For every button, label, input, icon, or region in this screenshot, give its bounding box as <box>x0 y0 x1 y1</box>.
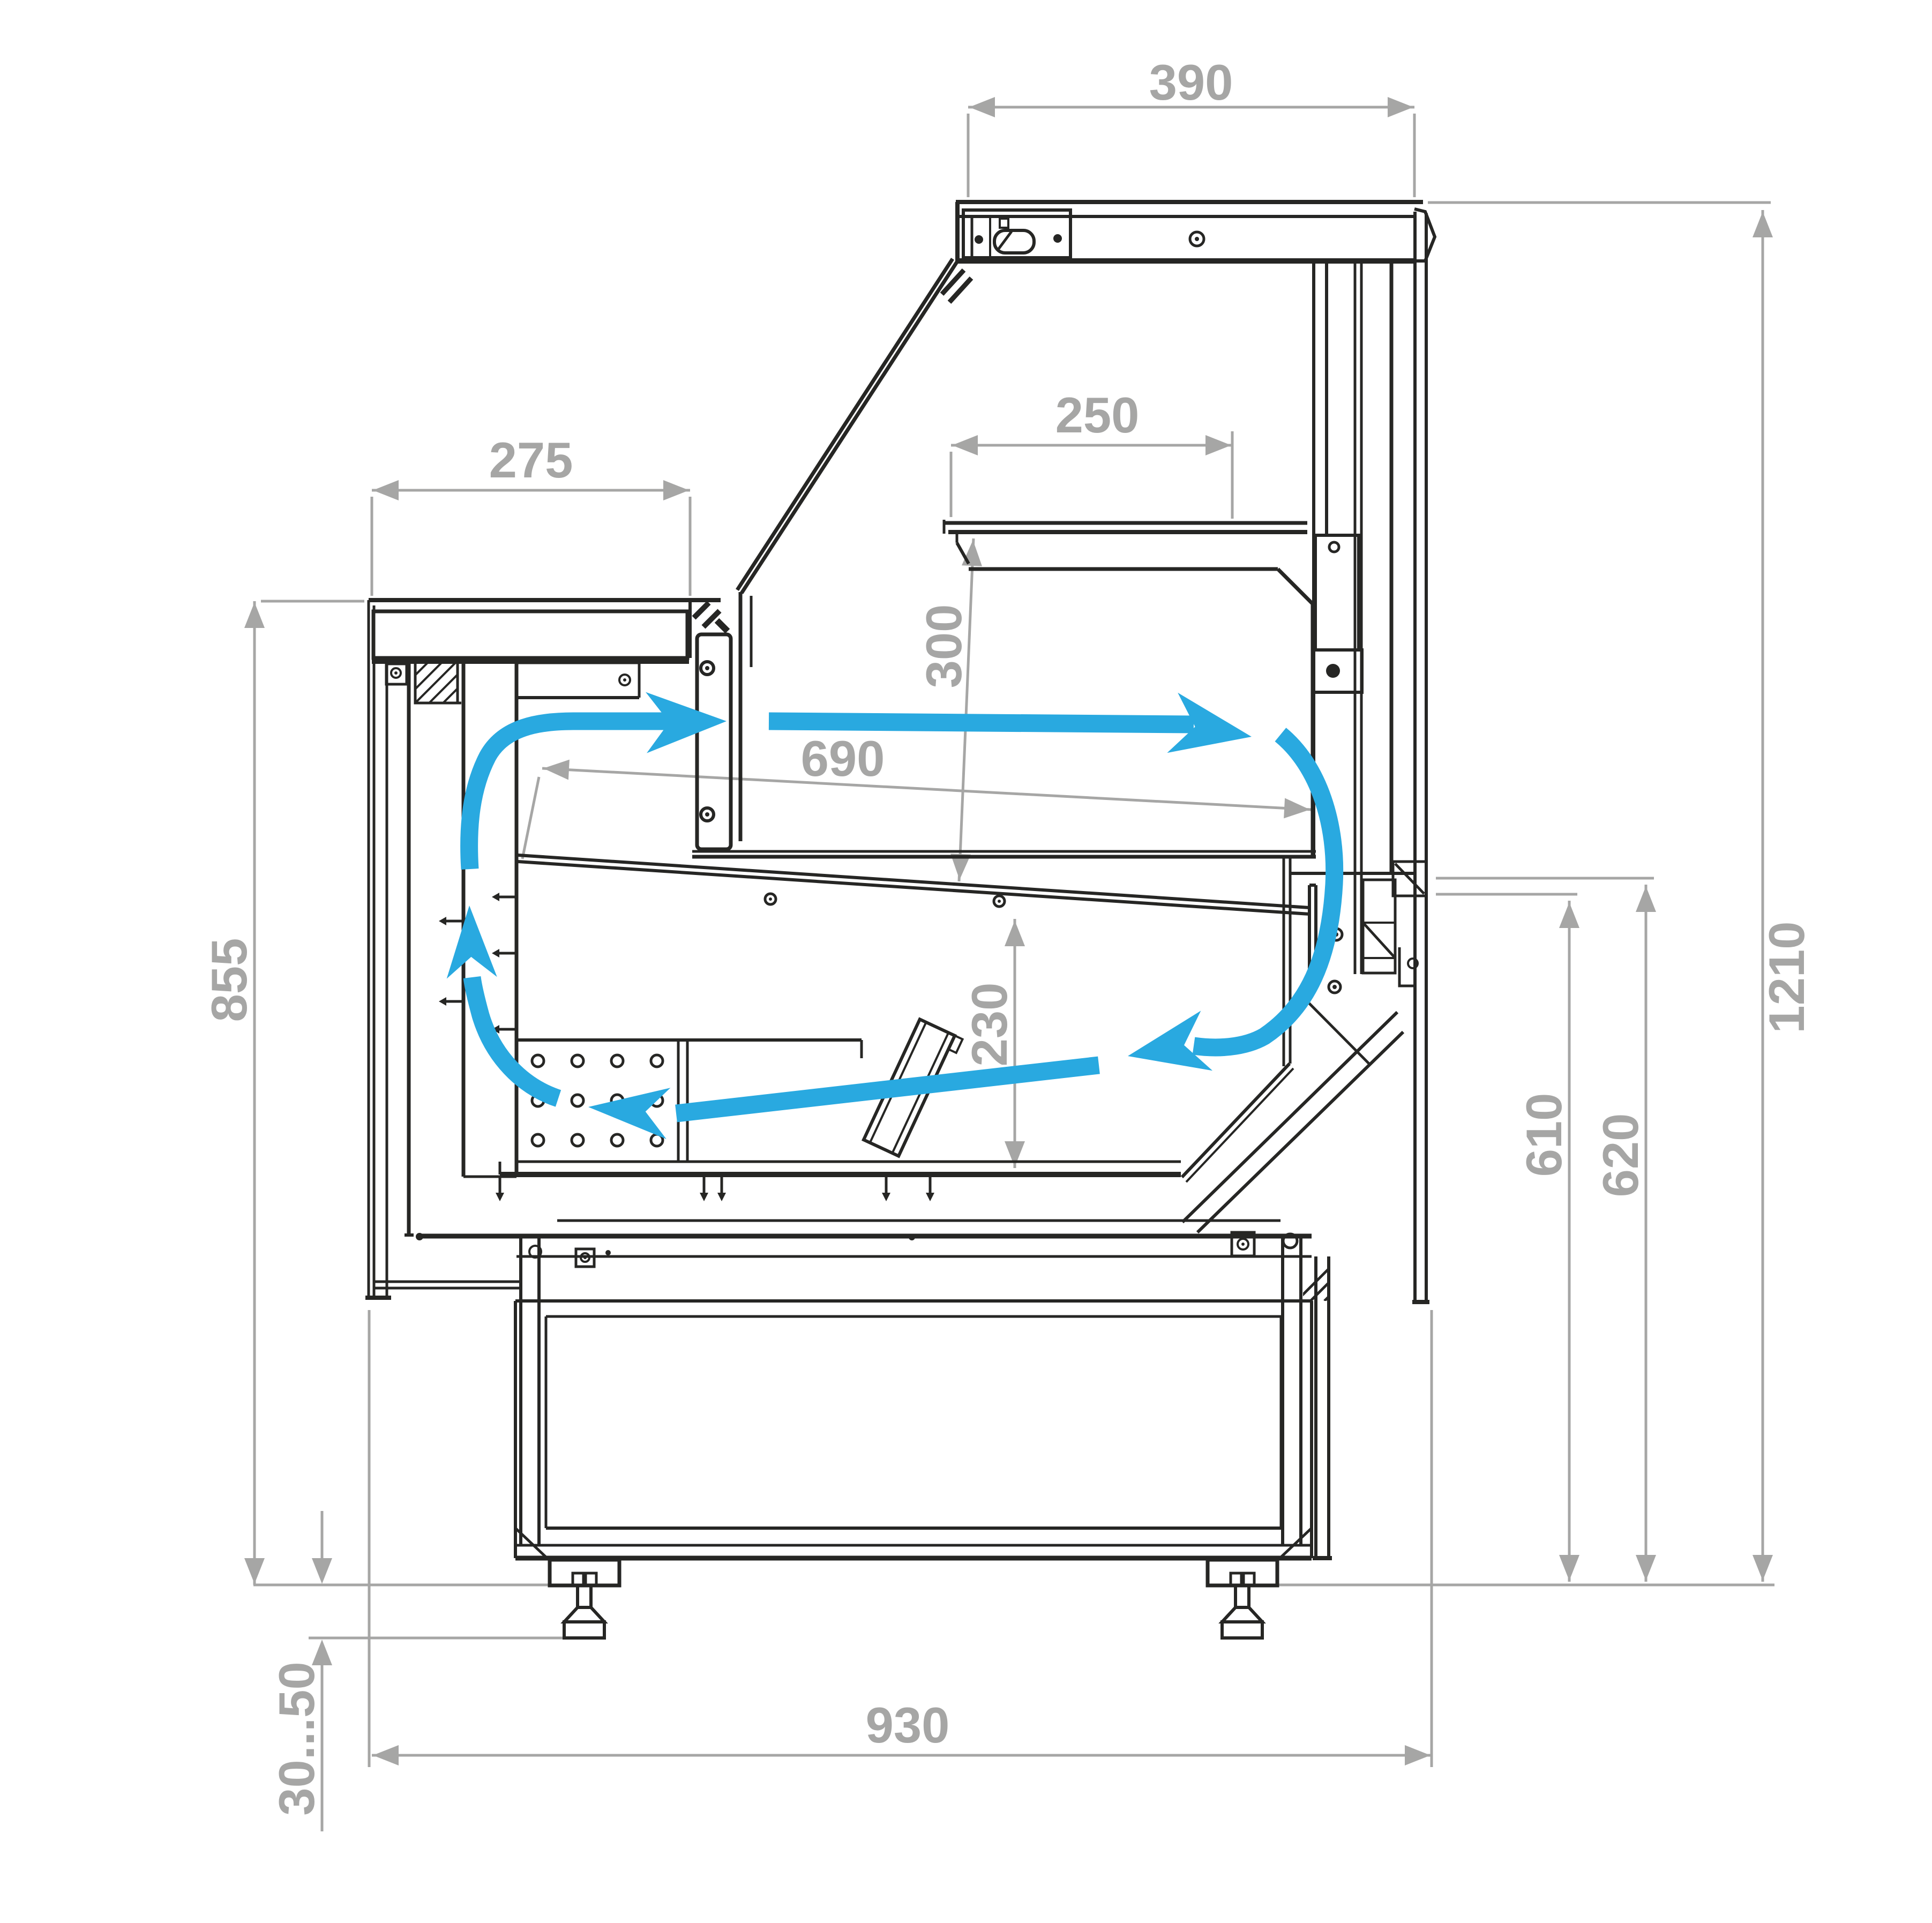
svg-text:620: 620 <box>1592 1113 1649 1198</box>
svg-text:250: 250 <box>1055 387 1140 443</box>
svg-text:610: 610 <box>1516 1093 1572 1177</box>
svg-text:690: 690 <box>801 730 885 787</box>
svg-text:855: 855 <box>201 938 257 1022</box>
svg-text:930: 930 <box>866 1697 950 1753</box>
svg-text:1210: 1210 <box>1758 921 1815 1033</box>
svg-text:275: 275 <box>489 432 573 488</box>
svg-text:230: 230 <box>961 983 1017 1067</box>
svg-text:30...50: 30...50 <box>268 1662 325 1815</box>
svg-text:300: 300 <box>916 604 972 689</box>
svg-text:390: 390 <box>1149 54 1233 110</box>
